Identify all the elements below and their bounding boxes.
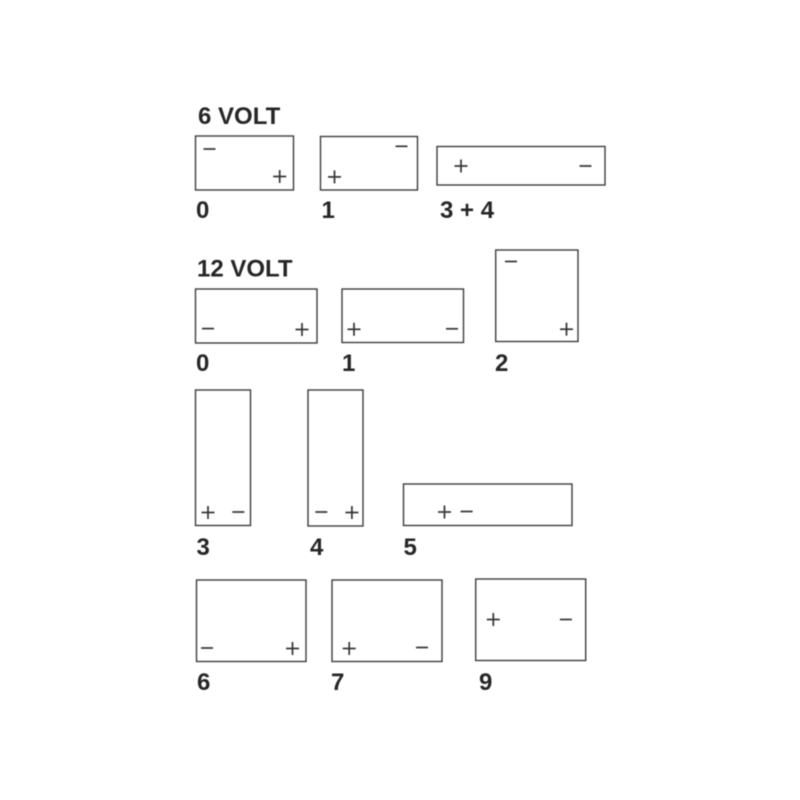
svg-text:6: 6 [197,669,210,696]
svg-text:9: 9 [479,669,492,696]
svg-text:2: 2 [495,350,508,377]
svg-text:0: 0 [196,350,209,377]
svg-text:12 VOLT: 12 VOLT [197,256,293,283]
svg-text:0: 0 [196,197,209,224]
svg-text:3: 3 [197,534,210,561]
svg-text:6 VOLT: 6 VOLT [198,103,281,130]
svg-text:3 + 4: 3 + 4 [440,197,495,224]
svg-text:7: 7 [331,669,344,696]
svg-text:5: 5 [404,534,417,561]
svg-text:1: 1 [322,197,335,224]
svg-text:4: 4 [310,534,324,561]
svg-text:1: 1 [342,350,355,377]
